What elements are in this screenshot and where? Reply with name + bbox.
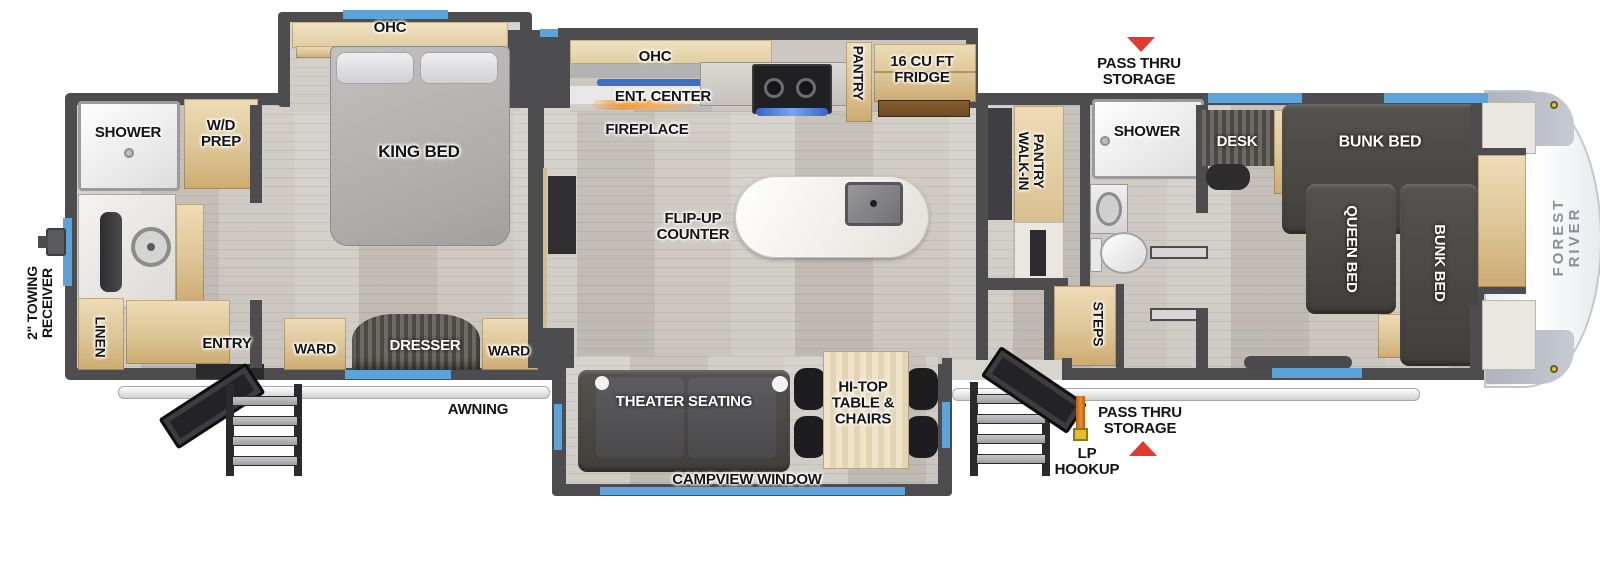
lp-connector [1073, 428, 1088, 441]
pantry-bath-wall [1080, 105, 1090, 289]
king-pillow-right [420, 52, 498, 84]
oven-glow [756, 108, 828, 116]
label-lp-hookup: LP HOOKUP [1055, 446, 1120, 478]
main-steps-tread-2 [976, 414, 1046, 424]
pass-thru-arrow-bottom-icon [1129, 441, 1157, 456]
label-bunk-bed-top: BUNK BED [1339, 133, 1422, 150]
burner-left [764, 78, 784, 98]
steps-frame-left [1044, 284, 1054, 368]
interior-steps [1054, 286, 1116, 366]
label-shower-mid: SHOWER [1114, 124, 1180, 140]
label-linen: LINEN [92, 316, 107, 357]
awning-bar-left [118, 386, 550, 399]
theater-slide-window-left [554, 404, 562, 450]
label-walk-in-pantry: WALK-IN PANTRY [1016, 132, 1046, 190]
rear-side-cabinet [176, 204, 204, 304]
front-closet [1478, 148, 1526, 294]
bath-bedroom-wall-upper [250, 105, 262, 203]
label-campview-window: CAMPVIEW WINDOW [672, 472, 821, 488]
island-faucet [870, 200, 877, 207]
steps-frame-right [1116, 284, 1124, 368]
dinette-chair-4 [906, 416, 938, 458]
dinette-chair-1 [794, 368, 826, 410]
pantry-lower-slot [1030, 230, 1046, 276]
bath-bedroom-wall-lower [250, 300, 262, 368]
cupholder-right [772, 376, 788, 392]
left-steps-tread-2 [232, 416, 298, 426]
label-awning: AWNING [448, 402, 508, 418]
left-steps-tread-3 [232, 436, 298, 446]
pass-thru-arrow-top-icon [1127, 37, 1155, 52]
label-king-bed: KING BED [378, 143, 460, 161]
rear-sink-faucet [147, 243, 155, 251]
label-towing-receiver: 2" TOWING RECEIVER [25, 266, 55, 340]
rear-shower [78, 101, 180, 191]
dinette-chair-3 [906, 368, 938, 410]
left-steps-tread-4 [232, 456, 298, 466]
label-pantry: PANTRY [850, 46, 865, 101]
label-shower-rear: SHOWER [95, 125, 161, 141]
label-ohc-kitchen: OHC [639, 49, 672, 65]
dinette-chair-2 [794, 416, 826, 458]
label-fireplace: FIREPLACE [605, 122, 688, 138]
bath-bunk-wall-lower [1196, 308, 1208, 368]
floorplan: OHC SHOWER W/D PREP KING BED 2" TOWING R… [0, 0, 1600, 564]
living-corner-wall [528, 328, 574, 368]
label-desk: DESK [1217, 134, 1258, 150]
tv-panel [548, 176, 576, 254]
top-window-2 [1384, 93, 1488, 103]
kitchen-pantry-wall [976, 105, 988, 368]
burner-right [796, 78, 816, 98]
left-steps-tread-1 [232, 396, 298, 406]
campview-window-strip [600, 487, 905, 495]
main-steps-tread-4 [976, 454, 1046, 464]
theater-cushion-left [596, 378, 684, 458]
soundbar [597, 79, 709, 86]
rear-shower-drain [124, 148, 134, 158]
bedroom-sliding-door [543, 168, 547, 352]
label-pass-thru-top: PASS THRU STORAGE [1097, 56, 1181, 88]
fridge-drawers [878, 100, 970, 117]
label-hi-top: HI-TOP TABLE & CHAIRS [832, 380, 894, 429]
label-ent-center: ENT. CENTER [615, 89, 711, 105]
bottom-window-right [1272, 368, 1362, 378]
toilet-bowl [1100, 232, 1148, 274]
label-wd-prep: W/D PREP [201, 118, 241, 150]
label-theater-seating: THEATER SEATING [616, 394, 752, 410]
label-entry: ENTRY [202, 336, 251, 352]
cap-marker-light-top [1550, 101, 1558, 109]
king-slide-window [343, 10, 448, 19]
label-pass-thru-bottom: PASS THRU STORAGE [1098, 405, 1182, 437]
cupholder-left [595, 376, 609, 390]
brand-forest-river: FOREST RIVER [1551, 198, 1583, 277]
label-queen-bed: QUEEN BED [1343, 205, 1359, 292]
front-ivory-upper [1482, 102, 1536, 154]
desk-chair [1206, 164, 1250, 190]
label-bunk-bed-side: BUNK BED [1431, 224, 1447, 302]
label-steps: STEPS [1090, 302, 1105, 347]
label-ohc-bedroom: OHC [374, 20, 407, 36]
rear-mirror [100, 212, 122, 292]
theater-cushion-right [688, 378, 776, 458]
towing-receiver-bracket [46, 228, 66, 256]
label-dresser: DRESSER [389, 338, 460, 354]
entry-jamb-left [942, 358, 952, 380]
mid-shower-head [1100, 136, 1110, 146]
label-flip-up-counter: FLIP-UP COUNTER [657, 211, 730, 243]
label-fridge: 16 CU FT FRIDGE [890, 54, 953, 86]
theater-slide-window-right [942, 402, 950, 448]
towing-receiver-stub [38, 236, 48, 248]
bedroom-bottom-window [345, 370, 451, 379]
king-pillow-left [336, 52, 414, 84]
rear-lower-cabinets [126, 300, 230, 364]
label-ward-left: WARD [294, 341, 336, 356]
bath-door-wall-1 [1150, 246, 1208, 259]
label-ward-right: WARD [488, 343, 530, 358]
top-window-1 [1208, 93, 1302, 103]
cap-marker-light-bottom [1550, 365, 1558, 373]
pantry-tall-cabinet [988, 108, 1012, 220]
front-ivory-lower [1482, 300, 1536, 370]
lp-hose [1076, 396, 1085, 432]
entry-jamb-right [1062, 358, 1072, 380]
main-steps-tread-3 [976, 434, 1046, 444]
mid-sink-bowl [1096, 192, 1122, 226]
